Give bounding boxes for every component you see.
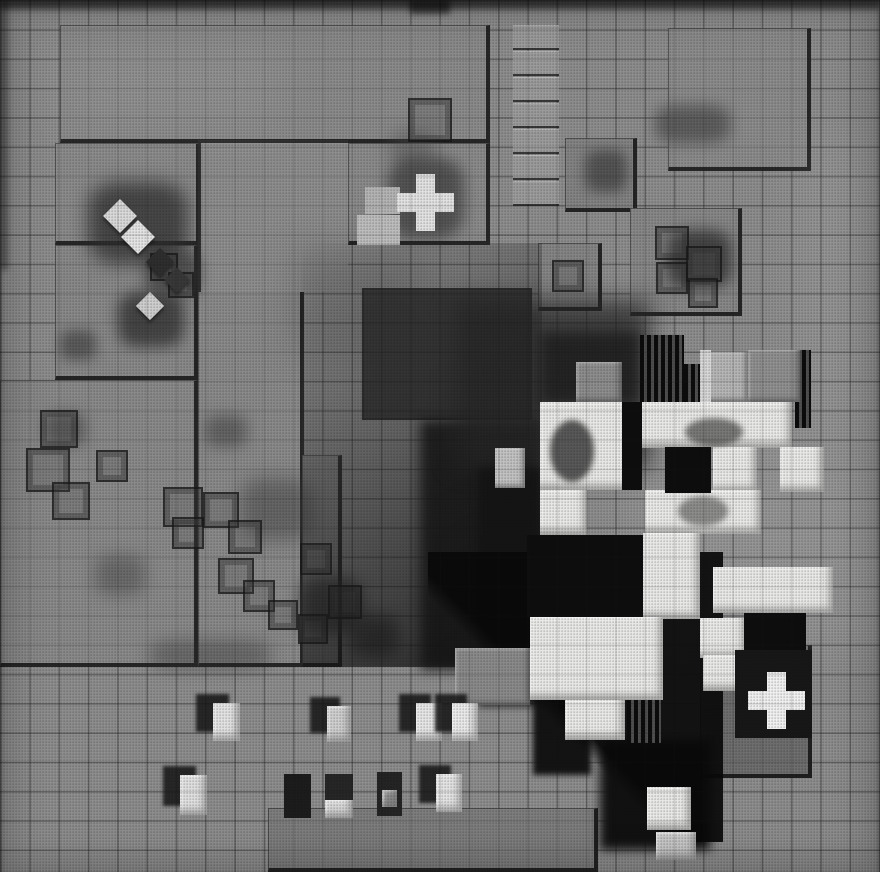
- light-tile: [365, 187, 400, 214]
- stain-smudge: [60, 330, 96, 360]
- phantom-brick-outline: [686, 246, 722, 282]
- black-void: [665, 447, 711, 493]
- phantom-brick-outline: [656, 262, 688, 294]
- small-white-block: [327, 706, 351, 742]
- stain-smudge: [585, 150, 627, 192]
- gray-roof-block: [748, 350, 800, 402]
- black-void: [622, 402, 642, 490]
- stain-smudge: [95, 555, 145, 595]
- faint-studs-in-shadow: [340, 243, 540, 307]
- phantom-brick-outline: [655, 226, 689, 260]
- phantom-brick-outline: [96, 450, 128, 482]
- white-sliver: [700, 350, 711, 402]
- white-tower-block: [530, 617, 663, 700]
- phantom-brick-outline: [172, 517, 204, 549]
- ladder-rung: [513, 51, 559, 74]
- white-tower-block: [713, 567, 833, 613]
- white-tower-block: [643, 533, 700, 619]
- ladder-rung: [513, 181, 559, 204]
- phantom-brick-outline: [552, 260, 584, 292]
- shaded-facade-stripes: [640, 335, 684, 403]
- tone-mottle: [0, 0, 8, 270]
- white-tower-block: [647, 787, 691, 830]
- small-white-block: [436, 774, 462, 812]
- tone-mottle: [410, 0, 450, 14]
- scene-layer: [0, 0, 880, 872]
- stain-smudge: [205, 415, 247, 447]
- lego-model-photograph: Overhead black-and-white photo of a LEGO…: [0, 0, 880, 872]
- stud-plate: [668, 28, 811, 171]
- stain-smudge: [150, 640, 270, 670]
- white-tower-block: [713, 447, 757, 492]
- small-white-block: [325, 800, 353, 818]
- ladder-rung: [513, 103, 559, 126]
- white-tower-block: [780, 447, 824, 492]
- phantom-brick-outline: [40, 410, 78, 448]
- ladder-rung: [513, 129, 559, 152]
- gray-roof-block: [576, 362, 622, 402]
- black-void: [744, 613, 806, 651]
- phantom-brick-outline: [408, 98, 452, 142]
- phantom-brick-outline: [688, 278, 718, 308]
- stain-smudge: [655, 105, 730, 143]
- white-tower-block: [656, 832, 696, 860]
- phantom-brick-outline: [268, 600, 298, 630]
- phantom-brick-outline: [228, 520, 262, 554]
- phantom-brick-outline: [52, 482, 90, 520]
- small-dark-block: [284, 774, 311, 818]
- tone-mottle: [800, 140, 880, 420]
- tone-mottle: [60, 40, 280, 130]
- roof-cast-shadow: [550, 420, 594, 482]
- ladder-rung: [513, 155, 559, 178]
- white-cross-horizontal-bar: [748, 691, 805, 710]
- gray-roof-block: [495, 448, 525, 488]
- small-white-block: [180, 775, 207, 815]
- roof-cast-shadow: [685, 418, 743, 446]
- small-white-block: [452, 703, 478, 741]
- small-white-block: [382, 790, 397, 807]
- ladder-rung: [513, 25, 559, 48]
- small-dark-block: [325, 774, 353, 802]
- white-cross-horizontal-bar: [397, 193, 454, 212]
- light-tile: [357, 215, 400, 245]
- white-tower-block: [540, 490, 587, 535]
- roof-cast-shadow: [678, 496, 728, 526]
- white-tower-block: [565, 700, 625, 740]
- small-white-block: [213, 703, 240, 741]
- ladder-rung: [513, 77, 559, 100]
- black-void: [527, 535, 643, 617]
